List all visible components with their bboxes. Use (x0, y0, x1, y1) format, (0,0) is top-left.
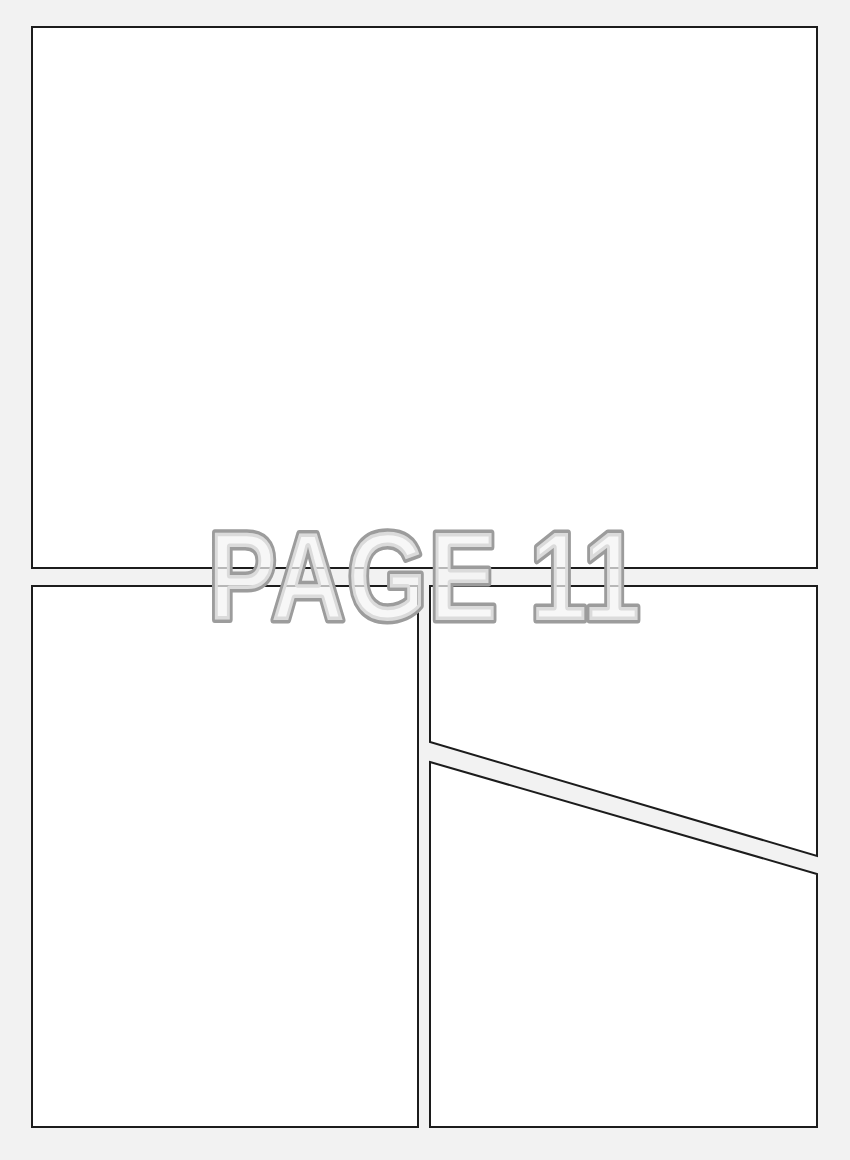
comic-page-template: PAGE 11 (0, 0, 850, 1160)
panel-top (31, 26, 818, 569)
right-panels-canvas (429, 585, 818, 1128)
panel-group-right (429, 585, 818, 1128)
panel-bottom-left (31, 585, 419, 1128)
